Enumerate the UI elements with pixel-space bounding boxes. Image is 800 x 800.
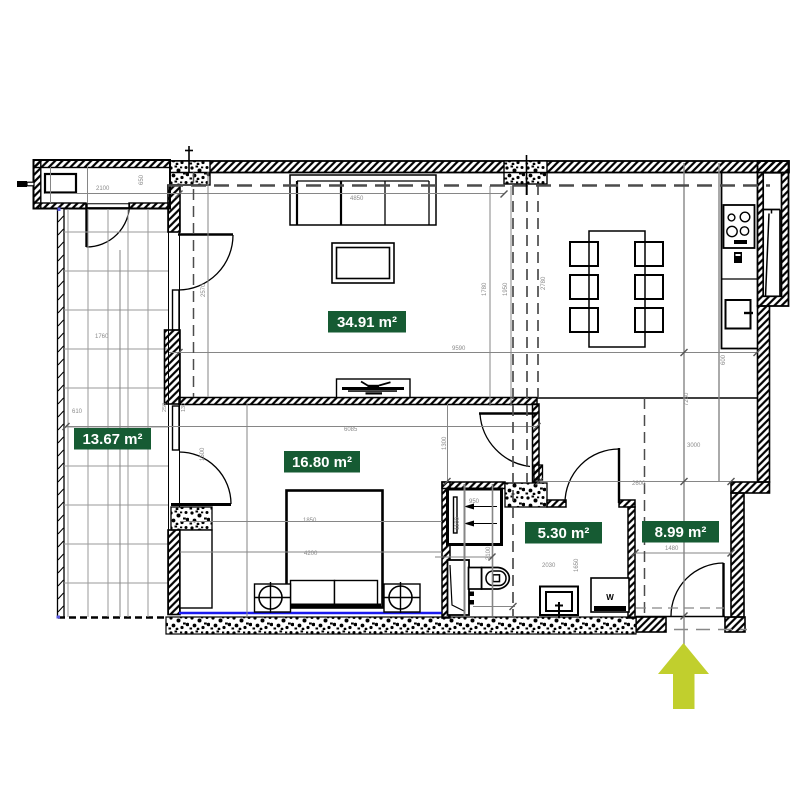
svg-text:4200: 4200	[304, 551, 318, 557]
svg-text:2600: 2600	[632, 481, 646, 487]
svg-text:600: 600	[721, 354, 727, 365]
svg-text:1650: 1650	[574, 558, 580, 572]
svg-text:7260: 7260	[684, 392, 690, 406]
svg-text:610: 610	[72, 409, 83, 415]
svg-text:1500: 1500	[200, 447, 206, 461]
svg-text:9590: 9590	[452, 346, 466, 352]
svg-text:250: 250	[162, 403, 168, 412]
svg-text:2100: 2100	[96, 186, 110, 192]
svg-text:130: 130	[181, 403, 187, 412]
svg-text:1760: 1760	[95, 334, 109, 340]
svg-text:1780: 1780	[482, 282, 488, 296]
svg-text:8.99 m²: 8.99 m²	[655, 524, 707, 541]
svg-text:3000: 3000	[687, 443, 701, 449]
svg-text:2570: 2570	[201, 283, 207, 297]
svg-text:1850: 1850	[303, 518, 317, 524]
svg-text:2030: 2030	[542, 563, 556, 569]
svg-text:2100: 2100	[486, 546, 492, 560]
svg-text:1950: 1950	[503, 282, 509, 296]
svg-text:1300: 1300	[442, 436, 448, 450]
svg-text:4850: 4850	[350, 196, 364, 202]
svg-text:W: W	[606, 593, 614, 602]
svg-text:950: 950	[469, 499, 480, 505]
svg-text:6085: 6085	[344, 427, 358, 433]
svg-text:5.30 m²: 5.30 m²	[538, 525, 590, 542]
svg-text:34.91 m²: 34.91 m²	[337, 314, 397, 331]
svg-text:1480: 1480	[665, 546, 679, 552]
svg-text:16.80 m²: 16.80 m²	[292, 454, 352, 471]
svg-text:1100: 1100	[455, 516, 461, 530]
svg-text:2780: 2780	[541, 276, 547, 290]
svg-text:650: 650	[139, 174, 145, 185]
svg-text:13.67 m²: 13.67 m²	[82, 431, 142, 448]
